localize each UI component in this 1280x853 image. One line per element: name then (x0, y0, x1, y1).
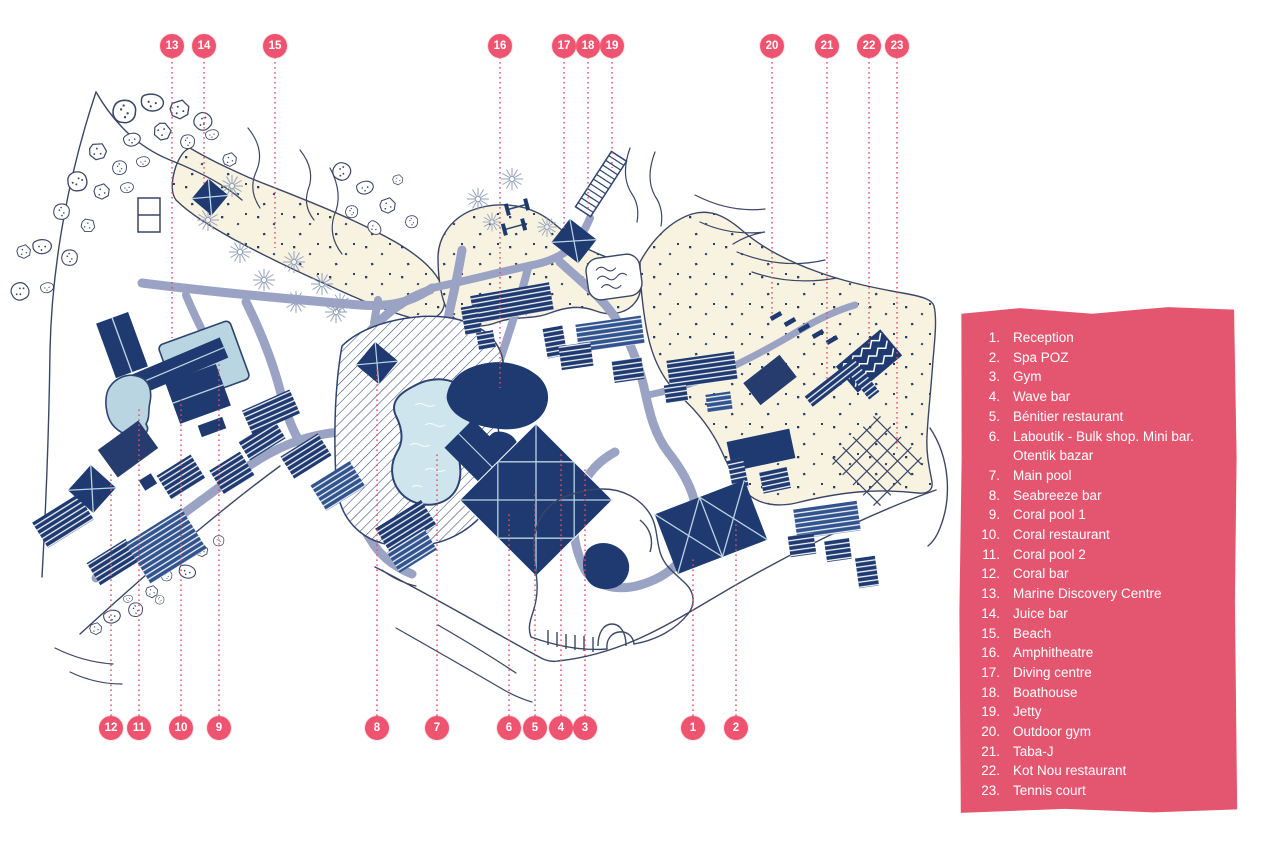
marker-13[interactable]: 13 (160, 34, 184, 58)
legend-item-label: Tennis court (1013, 781, 1222, 801)
building (705, 391, 732, 412)
legend-item-number: 8. (974, 486, 1000, 506)
marker-21[interactable]: 21 (815, 34, 839, 58)
legend-item-label: Boathouse (1013, 683, 1222, 703)
legend-item-number: 14. (974, 604, 1000, 624)
marker-6[interactable]: 6 (497, 716, 521, 740)
legend-item-number: 21. (974, 742, 1000, 762)
marker-label: 2 (733, 722, 739, 734)
building (98, 421, 158, 478)
legend-item-label: Diving centre (1013, 663, 1222, 683)
legend-panel: 1.Reception 2.Spa POZ 3.Gym 4.Wave bar 5… (958, 304, 1238, 816)
legend-item-label: Reception (1013, 328, 1222, 348)
legend-item-number: 17. (974, 663, 1000, 683)
jetty (575, 151, 626, 216)
building (198, 417, 227, 437)
legend-item-number: 22. (974, 761, 1000, 781)
marker-9[interactable]: 9 (207, 716, 231, 740)
legend-item: 7.Main pool (974, 466, 1222, 486)
legend-item-label: Outdoor gym (1013, 722, 1222, 742)
legend-item-number: 11. (974, 545, 1000, 565)
legend-item-label: Spa POZ (1013, 348, 1222, 368)
legend-item-number: 4. (974, 387, 1000, 407)
marker-18[interactable]: 18 (576, 34, 600, 58)
marker-2[interactable]: 2 (724, 716, 748, 740)
legend-item-number: 5. (974, 407, 1000, 427)
legend-item: 19.Jetty (974, 702, 1222, 722)
marker-label: 18 (582, 40, 595, 52)
legend-item: 12.Coral bar (974, 564, 1222, 584)
marker-14[interactable]: 14 (192, 34, 216, 58)
legend-item: 2.Spa POZ (974, 348, 1222, 368)
marker-label: 9 (216, 722, 222, 734)
legend-item-label: Coral pool 2 (1013, 545, 1222, 565)
legend-item: 14.Juice bar (974, 604, 1222, 624)
legend-item-label: Gym (1013, 367, 1222, 387)
marker-22[interactable]: 22 (857, 34, 881, 58)
marker-label: 8 (374, 722, 380, 734)
marker-label: 21 (821, 40, 834, 52)
legend-item: 21.Taba-J (974, 742, 1222, 762)
legend-item-number: 19. (974, 702, 1000, 722)
marker-15[interactable]: 15 (263, 34, 287, 58)
marker-label: 4 (558, 722, 564, 734)
legend-item-number: 18. (974, 683, 1000, 703)
marker-label: 12 (105, 722, 118, 734)
building (855, 556, 879, 588)
marker-label: 14 (198, 40, 211, 52)
legend-item-label: Juice bar (1013, 604, 1222, 624)
legend-item-label: Jetty (1013, 702, 1222, 722)
marker-17[interactable]: 17 (552, 34, 576, 58)
marker-16[interactable]: 16 (488, 34, 512, 58)
legend-item-label: Wave bar (1013, 387, 1222, 407)
legend-item-label: Marine Discovery Centre (1013, 584, 1222, 604)
marker-label: 5 (532, 722, 538, 734)
marker-10[interactable]: 10 (169, 716, 193, 740)
marker-19[interactable]: 19 (600, 34, 624, 58)
legend-item-number: 9. (974, 505, 1000, 525)
legend-item-label: Bénitier restaurant (1013, 407, 1222, 427)
resort-map-page: 13 14 15 16 17 18 19 20 21 22 23 12 11 1… (0, 0, 1280, 853)
legend-item-number: 12. (974, 564, 1000, 584)
marker-label: 6 (506, 722, 512, 734)
marker-label: 10 (175, 722, 188, 734)
boathouse-outline (584, 252, 643, 301)
marker-5[interactable]: 5 (523, 716, 547, 740)
legend-item-number: 7. (974, 466, 1000, 486)
legend-item-label: Laboutik - Bulk shop. Mini bar. Otentik … (1013, 427, 1222, 466)
marker-4[interactable]: 4 (549, 716, 573, 740)
marker-11[interactable]: 11 (127, 716, 151, 740)
marker-label: 15 (269, 40, 282, 52)
marker-label: 22 (863, 40, 876, 52)
legend-item-label: Coral bar (1013, 564, 1222, 584)
legend-item-number: 13. (974, 584, 1000, 604)
legend-item: 10.Coral restaurant (974, 525, 1222, 545)
legend-item-number: 15. (974, 624, 1000, 644)
legend-item: 22.Kot Nou restaurant (974, 761, 1222, 781)
legend-item-number: 16. (974, 643, 1000, 663)
coral-pool-2 (106, 375, 151, 436)
legend-item-number: 23. (974, 781, 1000, 801)
marker-label: 3 (582, 722, 588, 734)
marker-20[interactable]: 20 (760, 34, 784, 58)
legend-item: 15.Beach (974, 624, 1222, 644)
legend-item: 1.Reception (974, 328, 1222, 348)
legend-item: 16.Amphitheatre (974, 643, 1222, 663)
legend-item-number: 6. (974, 427, 1000, 466)
building (788, 533, 817, 557)
legend-item-number: 1. (974, 328, 1000, 348)
legend-item: 18.Boathouse (974, 683, 1222, 703)
legend-item: 8.Seabreeze bar (974, 486, 1222, 506)
marker-label: 17 (558, 40, 571, 52)
marker-8[interactable]: 8 (365, 716, 389, 740)
legend-item-number: 20. (974, 722, 1000, 742)
legend-item: 13.Marine Discovery Centre (974, 584, 1222, 604)
legend-item-label: Main pool (1013, 466, 1222, 486)
legend-item: 6.Laboutik - Bulk shop. Mini bar. Otenti… (974, 427, 1222, 466)
marker-12[interactable]: 12 (99, 716, 123, 740)
legend-item: 17.Diving centre (974, 663, 1222, 683)
marker-7[interactable]: 7 (425, 716, 449, 740)
building (664, 383, 688, 404)
building (157, 455, 206, 500)
marker-label: 7 (434, 722, 440, 734)
legend-item-label: Taba-J (1013, 742, 1222, 762)
legend-item-number: 2. (974, 348, 1000, 368)
building (558, 342, 593, 370)
marker-label: 16 (494, 40, 507, 52)
building (139, 473, 157, 491)
marker-23[interactable]: 23 (885, 34, 909, 58)
marker-label: 19 (606, 40, 619, 52)
marker-1[interactable]: 1 (681, 716, 705, 740)
building (96, 312, 148, 378)
marker-3[interactable]: 3 (573, 716, 597, 740)
marker-label: 20 (766, 40, 779, 52)
legend-item-label: Seabreeze bar (1013, 486, 1222, 506)
legend-item: 11.Coral pool 2 (974, 545, 1222, 565)
legend-item: 5.Bénitier restaurant (974, 407, 1222, 427)
legend-item: 23.Tennis court (974, 781, 1222, 801)
marker-label: 1 (690, 722, 696, 734)
marker-label: 23 (891, 40, 904, 52)
garden-pond (583, 543, 629, 589)
legend-item-label: Coral pool 1 (1013, 505, 1222, 525)
legend-item-number: 10. (974, 525, 1000, 545)
legend-item-label: Amphitheatre (1013, 643, 1222, 663)
legend-item-label: Coral restaurant (1013, 525, 1222, 545)
building (824, 538, 852, 562)
building (612, 357, 645, 383)
legend-item-label: Kot Nou restaurant (1013, 761, 1222, 781)
legend-item-number: 3. (974, 367, 1000, 387)
marker-label: 13 (166, 40, 179, 52)
legend-item: 3.Gym (974, 367, 1222, 387)
legend-item-label: Beach (1013, 624, 1222, 644)
marker-label: 11 (133, 722, 145, 734)
building (793, 501, 861, 540)
legend-item: 9.Coral pool 1 (974, 505, 1222, 525)
small-structure-outline (138, 198, 160, 232)
legend-item: 20.Outdoor gym (974, 722, 1222, 742)
building (476, 330, 496, 350)
legend-item: 4.Wave bar (974, 387, 1222, 407)
